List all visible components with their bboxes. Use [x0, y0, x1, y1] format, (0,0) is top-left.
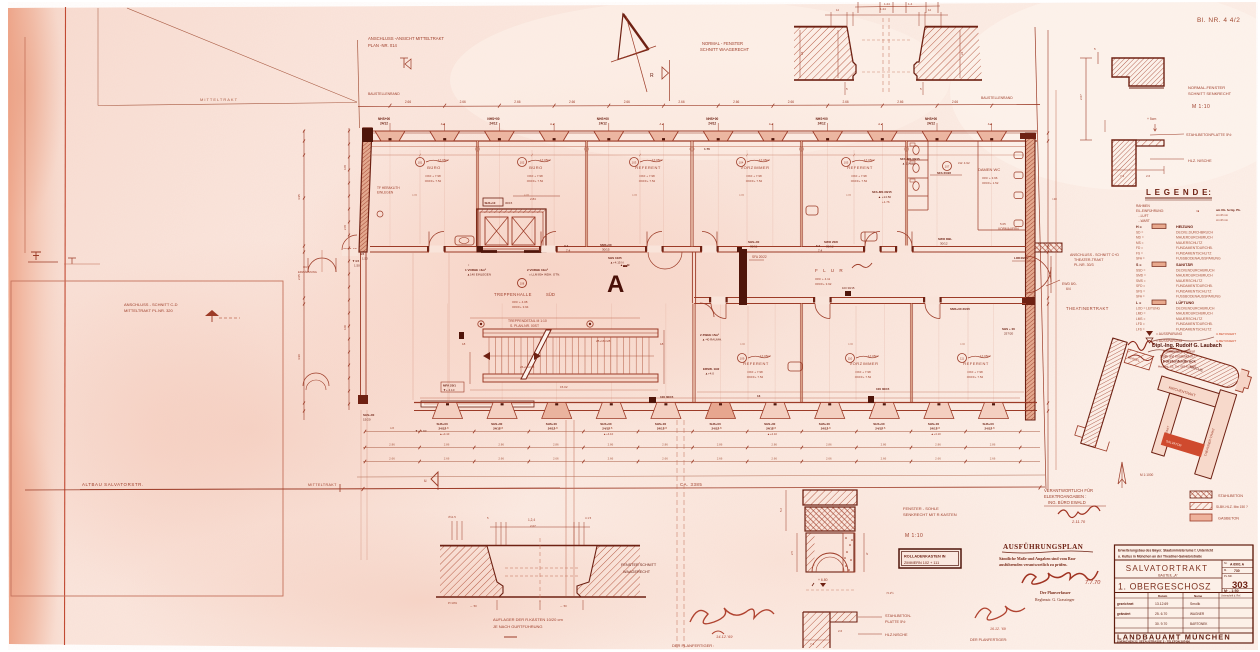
svg-text:NHS+00: NHS+00 — [378, 117, 390, 121]
svg-text:» LLM 80× WDH. OTN.: » LLM 80× WDH. OTN. — [529, 273, 560, 277]
svg-text:EWD 8/0-: EWD 8/0- — [1062, 282, 1077, 286]
svg-text:NORMAL - FENSTER: NORMAL - FENSTER — [702, 41, 743, 46]
svg-text:WAAGERECHT: WAAGERECHT — [623, 570, 651, 574]
svg-text:SHS+10: SHS+10 — [485, 201, 496, 205]
svg-text:GASBETON: GASBETON — [1218, 517, 1239, 521]
svg-text:2.86: 2.86 — [498, 443, 504, 447]
svg-text:FUNDAMENTSCHLITZ: FUNDAMENTSCHLITZ — [1176, 251, 1211, 255]
svg-text:3.4: 3.4 — [564, 244, 569, 248]
svg-text:L E G E N D E:: L E G E N D E: — [1146, 188, 1212, 197]
svg-text:OKFF+ 7.52: OKFF+ 7.52 — [967, 375, 984, 379]
svg-text:1.76: 1.76 — [704, 147, 710, 151]
svg-text:7.4: 7.4 — [810, 642, 815, 646]
svg-text:28+16×/28: 28+16×/28 — [596, 339, 611, 343]
svg-text:12: 12 — [928, 8, 932, 12]
svg-text:A.B: A.B — [499, 427, 503, 430]
svg-text:ANSCHLUSS -ANSICHT MITTELTRAKT: ANSCHLUSS -ANSICHT MITTELTRAKT — [368, 36, 444, 41]
svg-text:BAUSTELLENRAND: BAUSTELLENRAND — [981, 96, 1013, 100]
svg-text:OKF + 7.98: OKF + 7.98 — [855, 370, 871, 374]
svg-text:4.95: 4.95 — [412, 193, 418, 197]
svg-text:109: 109 — [740, 357, 745, 361]
svg-text:OKFF+ 3.94: OKFF+ 3.94 — [512, 305, 529, 309]
svg-text:FENSTER SCHNITT: FENSTER SCHNITT — [621, 563, 657, 567]
svg-text:SHS + 00: SHS + 00 — [1002, 327, 1015, 331]
svg-text:17.05m²: 17.05m² — [540, 158, 551, 162]
svg-text:2.86: 2.86 — [553, 443, 559, 447]
svg-text:17.05m²: 17.05m² — [760, 354, 771, 358]
svg-text:SHS+00: SHS+00 — [491, 422, 503, 426]
svg-text:ERSW. 19/2: ERSW. 19/2 — [703, 367, 720, 371]
svg-text:2.86: 2.86 — [662, 443, 668, 447]
svg-text:2.86: 2.86 — [826, 443, 832, 447]
svg-text:A.B: A.B — [772, 427, 776, 430]
svg-text:5.05: 5.05 — [1000, 222, 1006, 226]
svg-text:SHS+00: SHS+00 — [764, 422, 776, 426]
svg-text:REFERENT: REFERENT — [635, 165, 661, 170]
svg-text:SHS+00: SHS+00 — [873, 422, 885, 426]
svg-text:↕48: ↕48 — [1052, 197, 1057, 201]
svg-text:OKF + 7.98: OKF + 7.98 — [425, 174, 441, 178]
svg-text:26+16×/28: 26+16×/28 — [520, 365, 535, 369]
svg-text:MITTELTRAKT: MITTELTRAKT — [200, 97, 238, 102]
svg-text:100 30/15: 100 30/15 — [842, 286, 855, 290]
svg-text:17.05m²: 17.05m² — [864, 158, 875, 162]
svg-text:2.66: 2.66 — [717, 457, 723, 461]
svg-text:LFS =: LFS = — [1136, 327, 1145, 331]
svg-text:↔ 50: ↔ 50 — [560, 604, 567, 608]
svg-text:4½1.5: 4½1.5 — [448, 515, 456, 519]
svg-text:Δ▲: Δ▲ — [441, 122, 446, 126]
svg-text:1.50: 1.50 — [362, 257, 368, 261]
svg-text:SHS+00: SHS+00 — [437, 422, 449, 426]
svg-text:EIL-EINFÜHRUNG:: EIL-EINFÜHRUNG: — [1136, 209, 1164, 213]
svg-text:▲+4.10: ▲+4.10 — [767, 432, 777, 436]
svg-text:2.66: 2.66 — [405, 100, 411, 104]
svg-text:SFA 20/22: SFA 20/22 — [752, 255, 767, 259]
svg-text:OKFF+ 7.52: OKFF+ 7.52 — [746, 179, 763, 183]
svg-text:▲+4.10: ▲+4.10 — [440, 432, 450, 436]
svg-text:2.66: 2.66 — [881, 457, 887, 461]
svg-text:100 30/15: 100 30/15 — [660, 395, 674, 399]
svg-text:AUSFÜHRUNGSPLAN: AUSFÜHRUNGSPLAN — [1003, 542, 1084, 551]
svg-text:FUSSBODENAUSSPARUNG: FUSSBODENAUSSPARUNG — [1176, 257, 1221, 261]
svg-text:SENKRECHT MIT R.KASTEN: SENKRECHT MIT R.KASTEN — [903, 512, 957, 517]
svg-text:BARTONEK: BARTONEK — [1190, 622, 1208, 626]
svg-text:ROLLADENKASTEN IN: ROLLADENKASTEN IN — [904, 555, 946, 559]
svg-text:SFA 20/22: SFA 20/22 — [937, 171, 951, 175]
svg-text:= AUSSPARUNG: = AUSSPARUNG — [1156, 332, 1183, 336]
svg-text:OKF + 3.96: OKF + 3.96 — [982, 176, 998, 180]
svg-text:MFA 25/1: MFA 25/1 — [443, 384, 456, 388]
svg-text:MITTELTRAKT: MITTELTRAKT — [308, 483, 337, 487]
svg-text:2.86: 2.86 — [608, 443, 614, 447]
svg-text:DER PLANFERTIGER:: DER PLANFERTIGER: — [970, 638, 1007, 642]
svg-text:SHS+00: SHS+00 — [546, 422, 558, 426]
svg-text:4.95: 4.95 — [739, 193, 745, 197]
svg-text:7.4: 7.4 — [1120, 174, 1125, 178]
svg-text:13.12.69: 13.12.69 — [1155, 602, 1168, 606]
svg-text:LW. 4.92: LW. 4.92 — [958, 161, 970, 165]
svg-text:PLAN -NR. 014: PLAN -NR. 014 — [368, 43, 398, 48]
svg-text:▲-40 RAUMH.: ▲-40 RAUMH. — [702, 338, 722, 342]
svg-text:OKF + 4.08: OKF + 4.08 — [512, 300, 528, 304]
svg-text:2 ZWHE 15m²: 2 ZWHE 15m² — [700, 333, 719, 337]
svg-text:4.95: 4.95 — [632, 193, 638, 197]
svg-text:BÜRO: BÜRO — [427, 165, 441, 170]
svg-text:7.4: 7.4 — [818, 249, 823, 253]
svg-text:OKF + 7.98: OKF + 7.98 — [527, 174, 543, 178]
svg-text:HLZ. NISCHE: HLZ. NISCHE — [1188, 159, 1212, 163]
svg-text:107: 107 — [945, 165, 950, 169]
svg-text:105: 105 — [844, 161, 849, 165]
svg-text:2.66: 2.66 — [569, 100, 575, 104]
svg-text:24/12: 24/12 — [380, 122, 388, 126]
svg-text:▲ 114.50: ▲ 114.50 — [902, 162, 915, 166]
svg-text:17.05m²: 17.05m² — [652, 158, 663, 162]
svg-text:NHS+00: NHS+00 — [816, 117, 828, 121]
svg-text:NHS+00: NHS+00 — [487, 117, 499, 121]
svg-text:7.7.70: 7.7.70 — [1085, 580, 1101, 586]
svg-text:▲+4.10: ▲+4.10 — [931, 432, 941, 436]
svg-text:A: A — [607, 271, 624, 298]
svg-text:2.66: 2.66 — [771, 457, 777, 461]
svg-text:M.: M. — [1224, 568, 1227, 572]
svg-text:24/12: 24/12 — [818, 122, 826, 126]
svg-text:8 MÜNCHEN 22, SEEAUSTRASSE 2 ·: 8 MÜNCHEN 22, SEEAUSTRASSE 2 · TELEFON 2… — [1117, 639, 1190, 644]
svg-text:SHS+00: SHS+00 — [363, 413, 375, 417]
svg-text:gezeichnet: gezeichnet — [1117, 602, 1134, 606]
svg-text:TF HERAKLITH: TF HERAKLITH — [377, 186, 400, 190]
svg-text:M 1:1000: M 1:1000 — [1140, 473, 1154, 477]
svg-text:SFS =: SFS = — [1136, 289, 1145, 293]
svg-text:1.4: 1.4 — [908, 2, 913, 6]
svg-text:2.66: 2.66 — [444, 457, 450, 461]
svg-text:Δ▲: Δ▲ — [769, 122, 774, 126]
svg-text:ELEKTROANGABEN :: ELEKTROANGABEN : — [1044, 494, 1086, 499]
svg-text:24/12: 24/12 — [708, 122, 716, 126]
svg-text:4.90: 4.90 — [848, 342, 854, 346]
svg-text:...LUFT: ...LUFT — [1138, 214, 1149, 218]
svg-text:2.66: 2.66 — [498, 457, 504, 461]
svg-text:SMS+00: SMS+00 — [600, 243, 612, 247]
svg-text:DECKENDURCHBRUCH: DECKENDURCHBRUCH — [1176, 307, 1215, 311]
svg-text:2.66: 2.66 — [842, 100, 848, 104]
svg-text:30. 9.70: 30. 9.70 — [1155, 622, 1167, 626]
svg-text:MAUERDURCHBRUCH: MAUERDURCHBRUCH — [1176, 236, 1213, 240]
svg-text:2.86: 2.86 — [444, 443, 450, 447]
svg-text:ING. BÜRO EWALD: ING. BÜRO EWALD — [1048, 500, 1086, 505]
svg-text:12: 12 — [836, 8, 840, 12]
svg-text:2.86: 2.86 — [717, 443, 723, 447]
svg-text:257/20: 257/20 — [1004, 332, 1014, 336]
svg-text:↕5.2½: ↕5.2½ — [886, 591, 894, 595]
svg-text:OKFF+ 3.92: OKFF+ 3.92 — [815, 282, 832, 286]
svg-text:MAUERDURCHBRUCH: MAUERDURCHBRUCH — [1176, 312, 1213, 316]
svg-text:30/11: 30/11 — [750, 245, 758, 249]
svg-text:2.11.70: 2.11.70 — [1071, 519, 1086, 524]
svg-text:geändert: geändert — [1117, 612, 1131, 616]
svg-text:=■: =■ — [1196, 210, 1200, 213]
svg-text:OKFF+ 7.52: OKFF+ 7.52 — [527, 179, 544, 183]
svg-text:A.B: A.B — [881, 427, 885, 430]
svg-text:SCHNITT WAAGERECHT: SCHNITT WAAGERECHT — [700, 47, 750, 52]
svg-text:A.B: A.B — [608, 427, 612, 430]
svg-text:OKFF+ 1.52: OKFF+ 1.52 — [982, 181, 999, 185]
svg-text:SFA =: SFA = — [1136, 295, 1145, 299]
svg-text:30/15: 30/15 — [505, 201, 513, 205]
svg-text:24/12: 24/12 — [599, 122, 607, 126]
svg-text:M· - 1:50: M· - 1:50 — [1224, 589, 1239, 593]
svg-text:17.05m²: 17.05m² — [438, 158, 449, 162]
svg-text:▲+4.0: ▲+4.0 — [705, 372, 714, 376]
svg-text:4.95: 4.95 — [524, 193, 530, 197]
svg-text:THEATINERTRAKT: THEATINERTRAKT — [1066, 306, 1109, 311]
svg-text:SHS+00: SHS+00 — [710, 422, 722, 426]
svg-text:18: 18 — [660, 342, 664, 346]
svg-text:103: 103 — [632, 161, 637, 165]
svg-text:2.66: 2.66 — [935, 457, 941, 461]
svg-text:REFERENT: REFERENT — [743, 361, 769, 366]
svg-text:SALVATORTRAKT: SALVATORTRAKT — [1126, 564, 1208, 573]
svg-text:SCHNITT SENKRECHT: SCHNITT SENKRECHT — [1188, 91, 1232, 96]
svg-text:MD =: MD = — [1136, 236, 1144, 240]
svg-text:S. PLAN-NR. 00ST: S. PLAN-NR. 00ST — [510, 324, 539, 328]
svg-text:2.66: 2.66 — [788, 100, 794, 104]
svg-text:JE NACH GURTFÜHRUNG: JE NACH GURTFÜHRUNG — [493, 624, 542, 629]
svg-text:H =: H = — [1136, 225, 1142, 229]
svg-text:Δ▲: Δ▲ — [550, 122, 555, 126]
svg-text:110: 110 — [848, 357, 853, 361]
svg-text:SHS+00: SHS+00 — [983, 422, 995, 426]
svg-text:R: R — [650, 73, 654, 79]
svg-text:4 1 5: 4 1 5 — [585, 516, 592, 520]
svg-text:FUNDAMENTSCHLITZ: FUNDAMENTSCHLITZ — [1176, 327, 1211, 331]
svg-text:VORZIMMER: VORZIMMER — [741, 165, 770, 170]
svg-text:4.95: 4.95 — [343, 164, 347, 170]
svg-text:FENSTER - SOHLE: FENSTER - SOHLE — [903, 506, 939, 511]
svg-text:2.66: 2.66 — [662, 457, 668, 461]
svg-text:OKF + 4.11: OKF + 4.11 — [815, 277, 831, 281]
svg-text:am Ob. fertig. Pb.: am Ob. fertig. Pb. — [1216, 208, 1241, 212]
svg-text:2.05: 2.05 — [297, 274, 301, 280]
svg-text:HEIZUNG: HEIZUNG — [1176, 225, 1193, 229]
svg-text:2.66: 2.66 — [733, 100, 739, 104]
svg-text:2.86: 2.86 — [881, 443, 887, 447]
svg-text:Sämtliche Maße und Angaben sin: Sämtliche Maße und Angaben sind vom Bau- — [999, 556, 1077, 561]
svg-text:ALTBAU SALVATORSTR.: ALTBAU SALVATORSTR. — [82, 482, 144, 487]
svg-text:1,2,4: 1,2,4 — [528, 518, 535, 522]
svg-text:2.66: 2.66 — [460, 100, 466, 104]
svg-text:A.B: A.B — [445, 427, 449, 430]
svg-text:13: 13 — [757, 394, 761, 398]
svg-text:OKF + 7.98: OKF + 7.98 — [851, 174, 867, 178]
svg-text:2/: 2/ — [865, 552, 869, 555]
svg-text:SFA =: SFA = — [1136, 257, 1145, 261]
svg-text:18: 18 — [462, 342, 466, 346]
svg-text:cm Ø mm: cm Ø mm — [1216, 213, 1229, 217]
svg-text:OKF + 7.98: OKF + 7.98 — [747, 370, 763, 374]
svg-text:2.66: 2.66 — [897, 100, 903, 104]
svg-text:SSD =: SSD = — [1136, 269, 1145, 273]
svg-text:FUNDAMENTDURCHB.: FUNDAMENTDURCHB. — [1176, 246, 1213, 250]
svg-text:F L U R: F L U R — [815, 268, 845, 273]
svg-text:2.6: 2.6 — [838, 629, 843, 633]
svg-text:ANSCHLUSS - SCHNITT C-D: ANSCHLUSS - SCHNITT C-D — [124, 302, 178, 307]
svg-text:OKFF+ 7.52: OKFF+ 7.52 — [747, 375, 764, 379]
svg-text:2.66: 2.66 — [826, 457, 832, 461]
svg-text:LOD = LEITUNG: LOD = LEITUNG — [1136, 307, 1161, 311]
svg-text:A 6901 A: A 6901 A — [1230, 563, 1245, 567]
svg-text:PLATTE 5½: PLATTE 5½ — [885, 620, 906, 624]
svg-text:25. 6.70: 25. 6.70 — [1155, 612, 1167, 616]
svg-text:730: 730 — [1234, 569, 1240, 573]
svg-text:DAMEN WC: DAMEN WC — [978, 167, 1000, 172]
svg-text:SHS 1025: SHS 1025 — [608, 256, 622, 260]
svg-text:ERWÄRMUNG: ERWÄRMUNG — [298, 270, 317, 274]
svg-text:4.95: 4.95 — [297, 194, 301, 200]
svg-text:↔ 50: ↔ 50 — [470, 604, 477, 608]
svg-text:NHS+00: NHS+00 — [706, 117, 718, 121]
svg-text:24/12: 24/12 — [489, 122, 497, 126]
svg-text:OKFF+ 7.52: OKFF+ 7.52 — [851, 179, 868, 183]
svg-text:SFD =: SFD = — [1136, 284, 1145, 288]
svg-text:Δ▲: Δ▲ — [660, 122, 665, 126]
svg-text:24: 24 — [800, 51, 804, 55]
svg-text:ANSCHLUSS - SCHNITT C+D: ANSCHLUSS - SCHNITT C+D — [1070, 253, 1119, 257]
svg-text:1. OBERGESCHOSZ: 1. OBERGESCHOSZ — [1118, 582, 1211, 592]
svg-text:WAGNER: WAGNER — [1190, 612, 1205, 616]
svg-text:A.B: A.B — [936, 427, 940, 430]
svg-text:5.2: 5.2 — [779, 508, 783, 512]
svg-text:7.4: 7.4 — [566, 249, 571, 253]
svg-text:HLZ.NISCHE: HLZ.NISCHE — [885, 633, 908, 637]
svg-text:2.84: 2.84 — [530, 197, 536, 201]
svg-text:FUSSBODENAUSSPARUNG: FUSSBODENAUSSPARUNG — [1176, 295, 1221, 299]
svg-text:TREPPENDETAIL M 1:10: TREPPENDETAIL M 1:10 — [508, 319, 547, 323]
svg-text:OKF + 7.98: OKF + 7.98 — [967, 370, 983, 374]
svg-text:15.02: 15.02 — [560, 385, 568, 389]
svg-text:LMD =: LMD = — [1136, 312, 1146, 316]
svg-text:SWO 20/8: SWO 20/8 — [824, 240, 838, 244]
svg-text:2.86: 2.86 — [935, 443, 941, 447]
svg-text:OKFF+ 7.52: OKFF+ 7.52 — [855, 375, 872, 379]
svg-text:SHS+00: SHS+00 — [655, 422, 667, 426]
svg-text:Unterschrift d. Ref.: Unterschrift d. Ref. — [1221, 595, 1241, 598]
svg-text:M 1:10: M 1:10 — [905, 533, 923, 539]
svg-text:▼+ 2.10: ▼+ 2.10 — [443, 388, 455, 392]
svg-text:LOD40/25: LOD40/25 — [1014, 256, 1028, 260]
svg-text:VORZIMMER: VORZIMMER — [850, 361, 879, 366]
svg-text:SANITÄR: SANITÄR — [1176, 263, 1193, 267]
svg-text:2.66: 2.66 — [608, 457, 614, 461]
svg-text:PL.NR.: PL.NR. — [1224, 574, 1233, 578]
svg-text:FD =: FD = — [1136, 246, 1143, 250]
svg-text:OKFF+ 7.52: OKFF+ 7.52 — [425, 179, 442, 183]
svg-text:TREPPENHALLE: TREPPENHALLE — [494, 292, 532, 297]
svg-text:2.66: 2.66 — [514, 100, 520, 104]
svg-text:2.6: 2.6 — [1146, 174, 1151, 178]
svg-text:STAHLBETONPLATTE 5½: STAHLBETONPLATTE 5½ — [1186, 133, 1232, 137]
svg-text:REFERENT: REFERENT — [847, 165, 873, 170]
svg-text:LMS =: LMS = — [1136, 317, 1145, 321]
svg-text:108: 108 — [520, 282, 525, 286]
svg-text:MAUERSCHLITZ: MAUERSCHLITZ — [1176, 279, 1202, 283]
svg-text:AUFLAGER DER R.KÄSTEN 10/20: AUFLAGER DER R.KÄSTEN 10/20 cm — [493, 617, 563, 622]
svg-text:+ 6.80: + 6.80 — [818, 578, 828, 582]
svg-text:THEATER-TRAKT: THEATER-TRAKT — [1074, 258, 1104, 262]
svg-text:+1.76: +1.76 — [882, 200, 890, 204]
svg-text:1.24: 1.24 — [884, 2, 890, 6]
svg-text:30/12: 30/12 — [826, 245, 834, 249]
svg-text:Regbmstr. G. Grassinger: Regbmstr. G. Grassinger — [1035, 597, 1075, 602]
svg-text:VERANTWORTLICH FÜR: VERANTWORTLICH FÜR — [1044, 488, 1093, 493]
svg-text:14.12.’69: 14.12.’69 — [716, 634, 733, 639]
svg-text:RAHMEN: RAHMEN — [1136, 204, 1151, 208]
svg-text:A.B: A.B — [390, 427, 394, 430]
svg-text:5.2: 5.2 — [816, 244, 821, 248]
svg-text:4.90: 4.90 — [297, 354, 301, 360]
svg-text:17.05m²: 17.05m² — [980, 354, 991, 358]
svg-text:S =: S = — [1136, 263, 1142, 267]
svg-text:EINLEGEN: EINLEGEN — [377, 191, 394, 195]
svg-text:ausführenden verantwortlich zu: ausführenden verantwortlich zu prüfen. — [999, 562, 1067, 567]
svg-text:2.66: 2.66 — [678, 100, 684, 104]
svg-text:LFD =: LFD = — [1136, 322, 1145, 326]
svg-text:2.05: 2.05 — [343, 224, 347, 230]
svg-text:▼4.5: ▼4.5 — [352, 259, 359, 263]
svg-text:Bl. NR. 4 4/2: Bl. NR. 4 4/2 — [1197, 17, 1240, 24]
svg-text:Name: Name — [1194, 594, 1203, 598]
svg-text:2.5: 2.5 — [790, 551, 794, 555]
svg-text:1.50: 1.50 — [354, 264, 360, 268]
svg-text:LÜFTUNG: LÜFTUNG — [1176, 300, 1194, 305]
svg-text:1.24: 1.24 — [880, 7, 886, 11]
svg-text:Datum: Datum — [1158, 594, 1168, 598]
svg-text:SMD =: SMD = — [1136, 274, 1146, 278]
svg-text:BAUSTELLENRAND: BAUSTELLENRAND — [368, 92, 400, 96]
svg-text:24/12: 24/12 — [927, 122, 935, 126]
svg-text:4.95: 4.95 — [846, 193, 852, 197]
svg-text:A.B: A.B — [991, 427, 995, 430]
svg-text:2.86: 2.86 — [389, 443, 395, 447]
svg-text:▲▄▄N: ▲▄▄N — [620, 263, 629, 267]
svg-text:A.B: A.B — [827, 427, 831, 430]
svg-text:OKF + 7.98: OKF + 7.98 — [746, 174, 762, 178]
svg-text:U.BETONIERT: U.BETONIERT — [1216, 332, 1236, 336]
svg-text:SMS+00 30/15: SMS+00 30/15 — [950, 307, 970, 311]
svg-text:ZIMMERN 102 + 111: ZIMMERN 102 + 111 — [904, 561, 939, 565]
svg-text:1 VORHE ≈4m²: 1 VORHE ≈4m² — [465, 268, 486, 272]
svg-text:FS =: FS = — [1136, 251, 1143, 255]
svg-text:SÜD: SÜD — [546, 292, 555, 297]
svg-text:A.B: A.B — [663, 427, 667, 430]
svg-text:SD =: SD = — [1136, 231, 1143, 235]
svg-text:SHS+00: SHS+00 — [928, 422, 940, 426]
svg-text:MITTELTRAKT PL.NR. 320: MITTELTRAKT PL.NR. 320 — [124, 308, 174, 313]
svg-text:2,07: 2,07 — [530, 524, 536, 528]
svg-text:OKFF+ 7.52: OKFF+ 7.52 — [639, 179, 656, 183]
svg-text:Smolik: Smolik — [1190, 602, 1200, 606]
svg-text:MAUERSCHLITZ: MAUERSCHLITZ — [1176, 241, 1202, 245]
svg-text:2.66: 2.66 — [624, 100, 630, 104]
svg-text:DECKE.DURCHBRUCH: DECKE.DURCHBRUCH — [1176, 231, 1213, 235]
svg-text:NORMAL-FENSTER: NORMAL-FENSTER — [1188, 85, 1225, 90]
svg-text:A.B: A.B — [554, 427, 558, 430]
svg-text:DER PLANFERTIGER :: DER PLANFERTIGER : — [672, 643, 714, 648]
svg-text:SLBK-HLZ. Mw 150 ?: SLBK-HLZ. Mw 150 ? — [1216, 505, 1248, 509]
svg-text:17.05m²: 17.05m² — [868, 354, 879, 358]
svg-text:MS =: MS = — [1136, 241, 1144, 245]
